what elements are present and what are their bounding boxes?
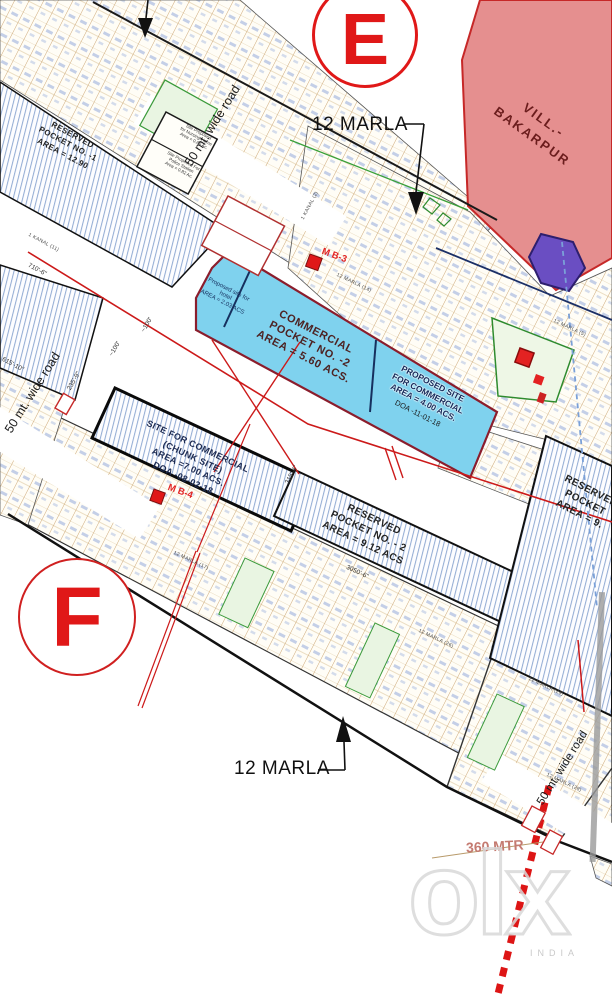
olx-watermark-country: INDIA	[530, 948, 579, 958]
sector-f-letter: F	[51, 569, 102, 666]
olx-watermark-logo: olx	[408, 826, 567, 962]
plot-type-label-top: 12 MARLA	[312, 114, 408, 136]
site-plan-map: E F 12 MARLA 12 MARLA VILL.- BAKARPUR 50…	[0, 0, 612, 998]
arrow-bottom-shaft	[344, 742, 345, 770]
sector-marker-f: F	[18, 558, 136, 676]
plot-type-label-bottom: 12 MARLA	[234, 758, 330, 780]
sector-e-letter: E	[341, 0, 389, 81]
